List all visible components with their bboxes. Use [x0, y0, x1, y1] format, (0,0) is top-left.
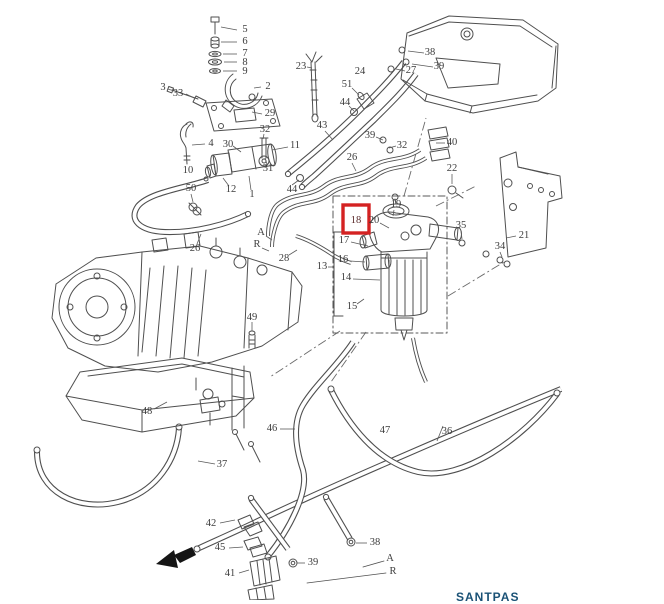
part-label: 45	[215, 543, 226, 554]
part-label: 12	[226, 185, 237, 196]
part-label: 24	[355, 67, 366, 78]
part-label: 35	[456, 221, 467, 232]
part-label: 51	[342, 80, 353, 91]
part-label: 40	[447, 138, 458, 149]
part-label: 26	[190, 244, 201, 255]
part-label: 42	[206, 519, 217, 530]
part-label: 47	[380, 426, 391, 437]
part-label: 20	[369, 216, 380, 227]
part-label: R	[389, 567, 396, 578]
part-label: 17	[339, 236, 350, 247]
part-label: 1	[249, 190, 254, 201]
part-label: 14	[341, 273, 352, 284]
part-label: 37	[217, 460, 228, 471]
part-label: 44	[340, 98, 351, 109]
part-label: 30	[223, 140, 234, 151]
part-label: 15	[347, 302, 358, 313]
part-label: 36	[442, 427, 453, 438]
part-label: 16	[338, 255, 349, 266]
part-label: 26	[347, 153, 358, 164]
watermark-text: SANTPAS	[456, 590, 519, 604]
part-label: 46	[267, 424, 278, 435]
part-label: A	[257, 228, 265, 239]
part-label: 19	[391, 200, 402, 211]
labels-layer: 5678923332932430113110501214423245144432…	[0, 0, 664, 600]
part-label: 27	[406, 66, 417, 77]
part-label: 22	[447, 164, 458, 175]
part-label: 39	[434, 62, 445, 73]
part-label: 5	[242, 25, 247, 36]
part-label: 49	[247, 313, 258, 324]
part-label: 38	[370, 538, 381, 549]
part-label: 4	[208, 139, 213, 150]
part-label: 32	[260, 125, 271, 136]
part-label: 6	[242, 37, 247, 48]
part-label: 31	[263, 164, 274, 175]
part-label: 23	[296, 62, 307, 73]
part-label: 2	[265, 82, 270, 93]
part-label: 32	[397, 141, 408, 152]
part-label: 39	[308, 558, 319, 569]
part-label: 28	[279, 254, 290, 265]
part-label: 21	[519, 231, 530, 242]
diagram-stage: 5678923332932430113110501214423245144432…	[0, 0, 664, 600]
part-label: A	[386, 554, 394, 565]
part-label: 48	[142, 407, 153, 418]
part-label: 50	[186, 184, 197, 195]
part-label: 41	[225, 569, 236, 580]
part-label: 43	[317, 121, 328, 132]
part-label: 29	[265, 109, 276, 120]
part-label: 9	[242, 67, 247, 78]
part-label: 39	[365, 131, 376, 142]
part-label-highlighted: 18	[351, 216, 362, 227]
part-label: 34	[495, 242, 506, 253]
part-label: 10	[183, 166, 194, 177]
part-label: 38	[425, 48, 436, 59]
part-label: 13	[317, 262, 328, 273]
part-label: R	[253, 240, 260, 251]
part-label: 44	[287, 185, 298, 196]
part-label: 3	[160, 83, 165, 94]
part-label: 11	[290, 141, 300, 152]
part-label: 33	[173, 89, 184, 100]
